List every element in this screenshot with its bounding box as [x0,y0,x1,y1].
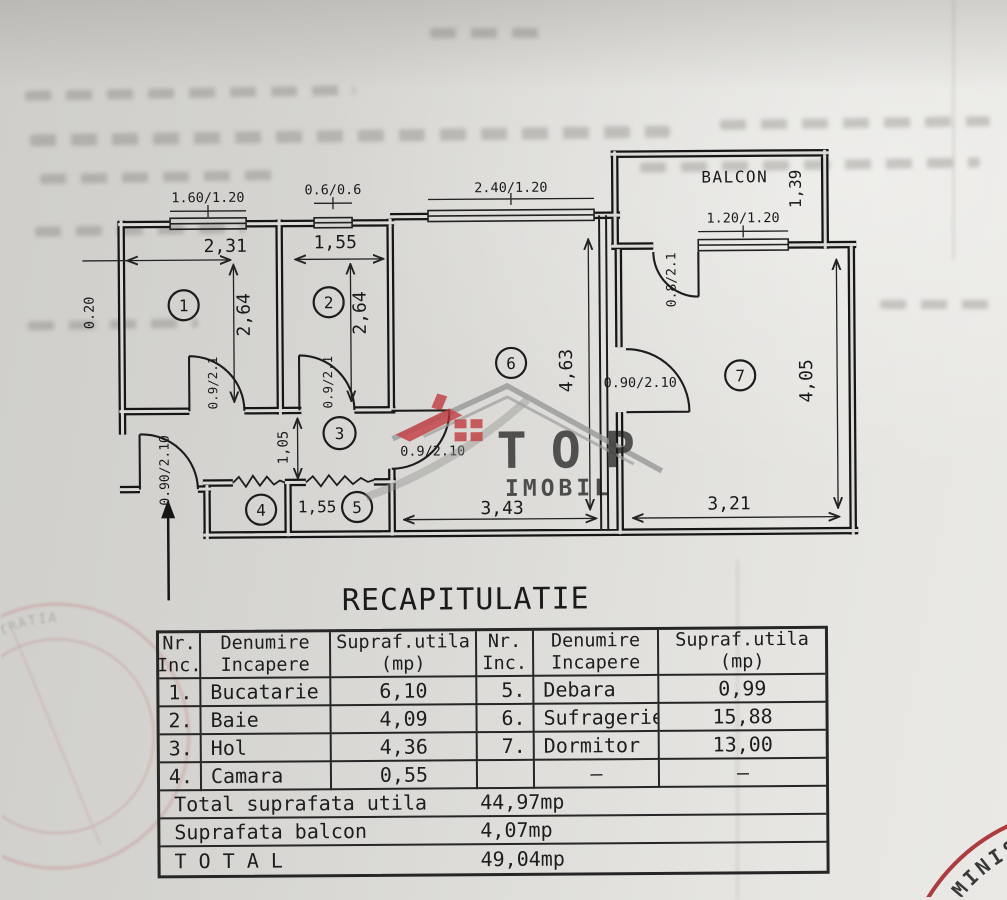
scanned-page: 1.60/1.20 0.6/0.6 2.40/1.20 1.20/1.20 BA… [0,0,1007,900]
window1-size-label: 1.60/1.20 [171,190,244,207]
balcony-door-size-label: 0.8/2.1 [664,252,679,307]
svg-text:5: 5 [352,498,362,517]
svg-text:7: 7 [735,366,745,385]
header-denumire-right: DenumireIncapere [534,630,659,677]
room2-height-label: 2,64 [350,291,371,335]
room6-height-label: 4,63 [556,349,577,393]
table-cell: Baie [201,706,331,735]
table-cell: 0,99 [659,675,825,704]
door2-size-label: 0.9/2.1 [320,356,335,409]
room1-width-label: 2,31 [204,236,248,257]
table-cell: Debara [534,676,659,705]
door7-size-label: 0.90/2.10 [604,375,677,392]
balcony-window-size-label: 1.20/1.20 [706,210,779,227]
stamp-left-text: ADMINISTRATIA [0,611,59,687]
table-cell: – [660,759,826,788]
table-cell: 4,09 [331,705,477,734]
room2-width-label: 1,55 [313,232,357,253]
svg-text:4: 4 [256,501,266,520]
window2-size-label: 0.6/0.6 [304,182,361,198]
room-number-2: 2 [314,287,344,317]
room-number-3: 3 [323,417,355,449]
header-denumire-left: DenumireIncapere [201,632,331,679]
room-number-1: 1 [169,290,199,320]
table-cell: 6. [477,705,534,733]
walls [118,150,859,540]
header-suprafata-right: Supraf.utila(mp) [659,629,825,676]
table-cell: Dormitor [535,732,660,761]
window-room2 [314,218,352,228]
header-nr-right: Nr.Inc. [477,631,534,677]
logo-text-top: TOP [496,421,659,480]
table-cell: Bucatarie [201,678,331,707]
svg-text:1: 1 [179,296,189,315]
logo-window-icon [454,419,482,441]
hall-height-label: 1,05 [276,431,292,465]
wall-thickness-label: 0.20 [82,297,98,330]
window-room6 [428,209,594,221]
table-cell: 0,55 [332,761,478,790]
stamp-bottom-right: MINIST [899,807,1007,900]
table-cell: 1. [159,679,201,707]
header-suprafata-left: Supraf.utila(mp) [331,631,477,678]
grand-total-row: T O T A L 49,04mp [160,843,826,876]
logo-text-imobil: IMOBIL [505,475,612,502]
window-symbols [170,208,788,254]
window-balcony [698,239,788,251]
room1-height-label: 2,64 [234,293,255,337]
recap-title: RECAPITULATIE [331,581,601,618]
table-cell: 5. [477,677,534,705]
balcony-label: BALCON [701,167,768,186]
entrance-arrow [161,499,176,600]
room-number-7: 7 [725,360,755,390]
table-cell: 6,10 [331,677,477,706]
table-cell: 4,36 [332,733,478,762]
door1-size-label: 0.9/2.1 [205,357,220,410]
svg-text:6: 6 [506,354,516,373]
table-cell: Hol [202,734,332,763]
table-cell: – [535,760,660,789]
table-cell: 3. [160,735,202,763]
table-cell: 4. [160,763,202,791]
room7-width-label: 3,21 [707,493,751,514]
header-nr-left: Nr.Inc. [159,633,201,679]
table-cell [478,761,535,789]
logo-chimney [431,393,447,410]
table-cell: 7. [478,733,535,761]
room7-height-label: 4,05 [796,359,817,403]
entry-door-size-label: 0.90/2.10 [158,435,173,506]
table-cell: 13,00 [660,731,826,760]
recap-table: Nr.Inc. DenumireIncapere Supraf.utila(mp… [156,626,830,879]
table-cell: 15,88 [659,703,825,732]
window-room1 [170,218,246,230]
room5-width-label: 1,55 [298,497,337,516]
logo-red-gable [395,408,462,441]
svg-text:2: 2 [324,293,334,312]
svg-text:3: 3 [335,424,345,443]
window6-size-label: 2.40/1.20 [474,180,547,197]
room-number-6: 6 [496,348,526,378]
balcony-height-label: 1,39 [786,170,805,209]
table-cell: Sufragerie [534,704,659,733]
room-number-4: 4 [246,495,276,525]
table-cell: 2. [159,707,201,735]
table-cell: Camara [202,762,332,791]
